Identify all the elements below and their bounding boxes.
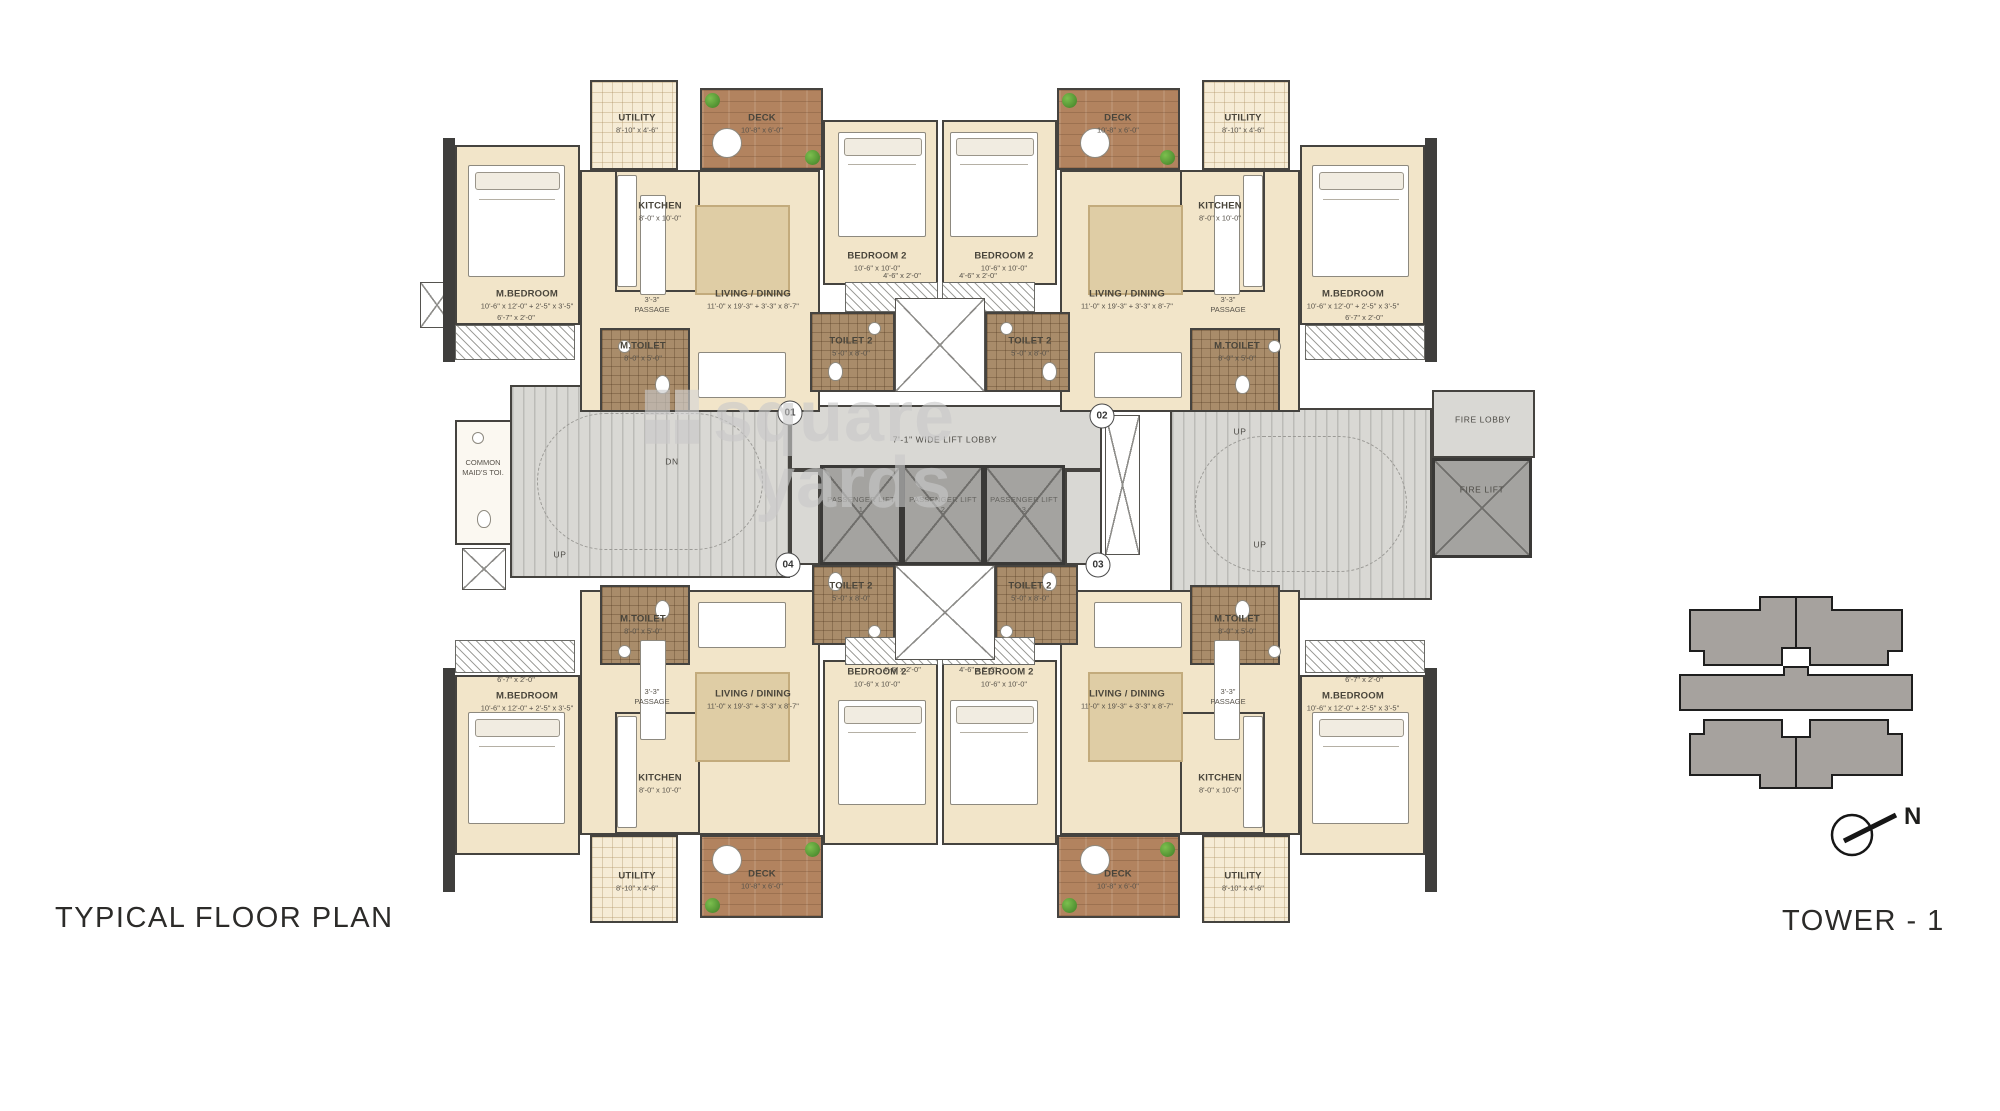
label-unit01-passage: 3'-3"PASSAGE [634,295,669,315]
furniture-plant [1062,898,1077,913]
furniture-wc [477,510,491,528]
label-unit04-living: LIVING / DINING11'-0" x 19'-3" + 3'-3" x… [707,689,799,712]
key-plan [1672,585,1922,799]
furniture-sink [1268,340,1281,353]
wall-right-top [1425,138,1437,362]
label-unit02-bed2-balcony: 4'-6" x 2'-0" [959,271,997,281]
label-unit03-living: LIVING / DINING11'-0" x 19'-3" + 3'-3" x… [1081,689,1173,712]
unit01-balcony-mbed [455,325,575,360]
label-unit03-utility: UTILITY8'-10" x 4'-6" [1222,871,1264,894]
label-unit01-deck: DECK10'-8" x 6'-0" [741,113,783,136]
furniture-counter [617,716,637,828]
furniture-rug [1088,672,1183,762]
floor-plan: M.BEDROOM10'-6" x 12'-0" + 2'-5" x 3'-5"… [0,0,2000,1111]
furniture-rug [695,672,790,762]
unit-03-marker: 03 [1086,553,1111,578]
unit04-toilet2 [812,565,895,645]
label-unit04-mbed-balcony: 6'-7" x 2'-0" [497,675,535,685]
furniture-bed [950,700,1038,805]
label-unit02-utility: UTILITY8'-10" x 4'-6" [1222,113,1264,136]
label-unit01-living: LIVING / DINING11'-0" x 19'-3" + 3'-3" x… [707,289,799,312]
furniture-plant [805,842,820,857]
unit-02-marker: 02 [1090,404,1115,429]
lobby-ext-left [790,470,820,565]
furniture-plant [1062,93,1077,108]
label-unit04-utility: UTILITY8'-10" x 4'-6" [616,871,658,894]
label-unit02-m-toilet: M.TOILET8'-0" x 5'-0" [1214,341,1260,364]
furniture-table [1094,602,1182,648]
furniture-plant [1160,842,1175,857]
furniture-sink [472,432,484,444]
label-passenger-lift-1: PASSENGER LIFT1 [827,495,895,515]
wall-right-bottom [1425,668,1437,892]
tower-title: TOWER - 1 [1782,905,1945,938]
label-lift-lobby: 7'-1" WIDE LIFT LOBBY [893,434,997,445]
label-unit04-deck: DECK10'-8" x 6'-0" [741,869,783,892]
label-unit04-toilet2: TOILET 25'-0" x 8'-0" [829,581,872,604]
stair-right [1170,408,1432,600]
label-unit02-m-bedroom: M.BEDROOM10'-6" x 12'-0" + 2'-5" x 3'-5" [1307,289,1399,312]
label-unit03-kitchen: KITCHEN8'-0" x 10'-0" [1198,773,1242,796]
duct-right-column [1105,415,1140,555]
furniture-sink [868,322,881,335]
furniture-table [698,602,786,648]
furniture-plant [705,93,720,108]
label-maids-toilet: COMMONMAID'S TOI. [462,458,504,478]
furniture-plant [705,898,720,913]
label-unit01-toilet2: TOILET 25'-0" x 8'-0" [829,336,872,359]
label-unit02-kitchen: KITCHEN8'-0" x 10'-0" [1198,201,1242,224]
furniture-plant [1160,150,1175,165]
label-unit01-kitchen: KITCHEN8'-0" x 10'-0" [638,201,682,224]
label-unit02-toilet2: TOILET 25'-0" x 8'-0" [1008,336,1051,359]
label-fire-lobby: FIRE LOBBY [1455,414,1511,425]
wall-left-bottom [443,668,455,892]
label-unit01-utility: UTILITY8'-10" x 4'-6" [616,113,658,136]
label-fire-lift: FIRE LIFT [1460,484,1505,495]
label-stair-right-up1: UP [1233,426,1246,437]
label-unit04-bed2-balcony: 4'-6" x 2'-0" [883,665,921,675]
label-unit03-toilet2: TOILET 25'-0" x 8'-0" [1008,581,1051,604]
label-unit03-deck: DECK10'-8" x 6'-0" [1097,869,1139,892]
label-unit01-m-bedroom: M.BEDROOM10'-6" x 12'-0" + 2'-5" x 3'-5" [481,289,573,312]
label-unit04-m-bedroom: M.BEDROOM10'-6" x 12'-0" + 2'-5" x 3'-5" [481,691,573,714]
wall-left-top [443,138,455,362]
label-unit02-passage: 3'-3"PASSAGE [1210,295,1245,315]
label-stair-left-up: UP [553,549,566,560]
label-unit02-living: LIVING / DINING11'-0" x 19'-3" + 3'-3" x… [1081,289,1173,312]
label-passenger-lift-3: PASSENGER LIFT3 [990,495,1058,515]
furniture-sink [1000,625,1013,638]
furniture-wc [655,375,670,394]
furniture-sink [618,645,631,658]
duct-top-center [895,298,985,392]
furniture-bed [468,165,565,277]
furniture-bed [468,712,565,824]
unit02-balcony-mbed [1305,325,1425,360]
label-unit02-mbed-balcony: 6'-7" x 2'-0" [1345,313,1383,323]
label-passenger-lift-2: PASSENGER LIFT2 [909,495,977,515]
furniture-bed [1312,165,1409,277]
label-unit01-mbed-balcony: 6'-7" x 2'-0" [497,313,535,323]
stair-left [510,385,790,578]
floor-plan-sheet: M.BEDROOM10'-6" x 12'-0" + 2'-5" x 3'-5"… [0,0,2000,1111]
furniture-bed [950,132,1038,237]
furniture-rug [1088,205,1183,295]
label-unit01-bed2-balcony: 4'-6" x 2'-0" [883,271,921,281]
furniture-counter [1243,175,1263,287]
furniture-bed [838,700,926,805]
unit-01-marker: 01 [778,401,803,426]
furniture-wc [1042,362,1057,381]
label-unit03-m-toilet: M.TOILET8'-0" x 5'-0" [1214,614,1260,637]
label-unit02-deck: DECK10'-8" x 6'-0" [1097,113,1139,136]
label-unit03-passage: 3'-3"PASSAGE [1210,687,1245,707]
furniture-plant [805,150,820,165]
furniture-sink [868,625,881,638]
furniture-rug [695,205,790,295]
label-unit03-m-bedroom: M.BEDROOM10'-6" x 12'-0" + 2'-5" x 3'-5" [1307,691,1399,714]
furniture-bed [838,132,926,237]
label-stair-right-up2: UP [1253,539,1266,550]
page-title: TYPICAL FLOOR PLAN [55,902,394,935]
furniture-chair [712,128,742,158]
duct-bottom-center [895,565,995,660]
fire-lift [1432,458,1532,558]
furniture-sink [1268,645,1281,658]
furniture-table [698,352,786,398]
label-unit04-m-toilet: M.TOILET8'-0" x 5'-0" [620,614,666,637]
furniture-wc [828,362,843,381]
label-unit04-kitchen: KITCHEN8'-0" x 10'-0" [638,773,682,796]
duct-below-maid [462,548,506,590]
label-unit03-bed2-balcony: 4'-6" x 2'-0" [959,665,997,675]
label-unit03-mbed-balcony: 6'-7" x 2'-0" [1345,675,1383,685]
unit03-balcony-mbed [1305,640,1425,673]
label-unit01-m-toilet: M.TOILET8'-0" x 5'-0" [620,341,666,364]
label-stair-left-dn: DN [665,456,678,467]
furniture-sink [1000,322,1013,335]
furniture-counter [617,175,637,287]
unit-04-marker: 04 [776,553,801,578]
furniture-bed [1312,712,1409,824]
lobby-ext-right [1065,470,1102,565]
unit04-balcony-mbed [455,640,575,673]
north-arrow: N [1820,795,1904,866]
furniture-counter [1243,716,1263,828]
north-label: N [1904,803,1921,831]
furniture-wc [1235,375,1250,394]
furniture-chair [712,845,742,875]
label-unit04-passage: 3'-3"PASSAGE [634,687,669,707]
furniture-table [1094,352,1182,398]
